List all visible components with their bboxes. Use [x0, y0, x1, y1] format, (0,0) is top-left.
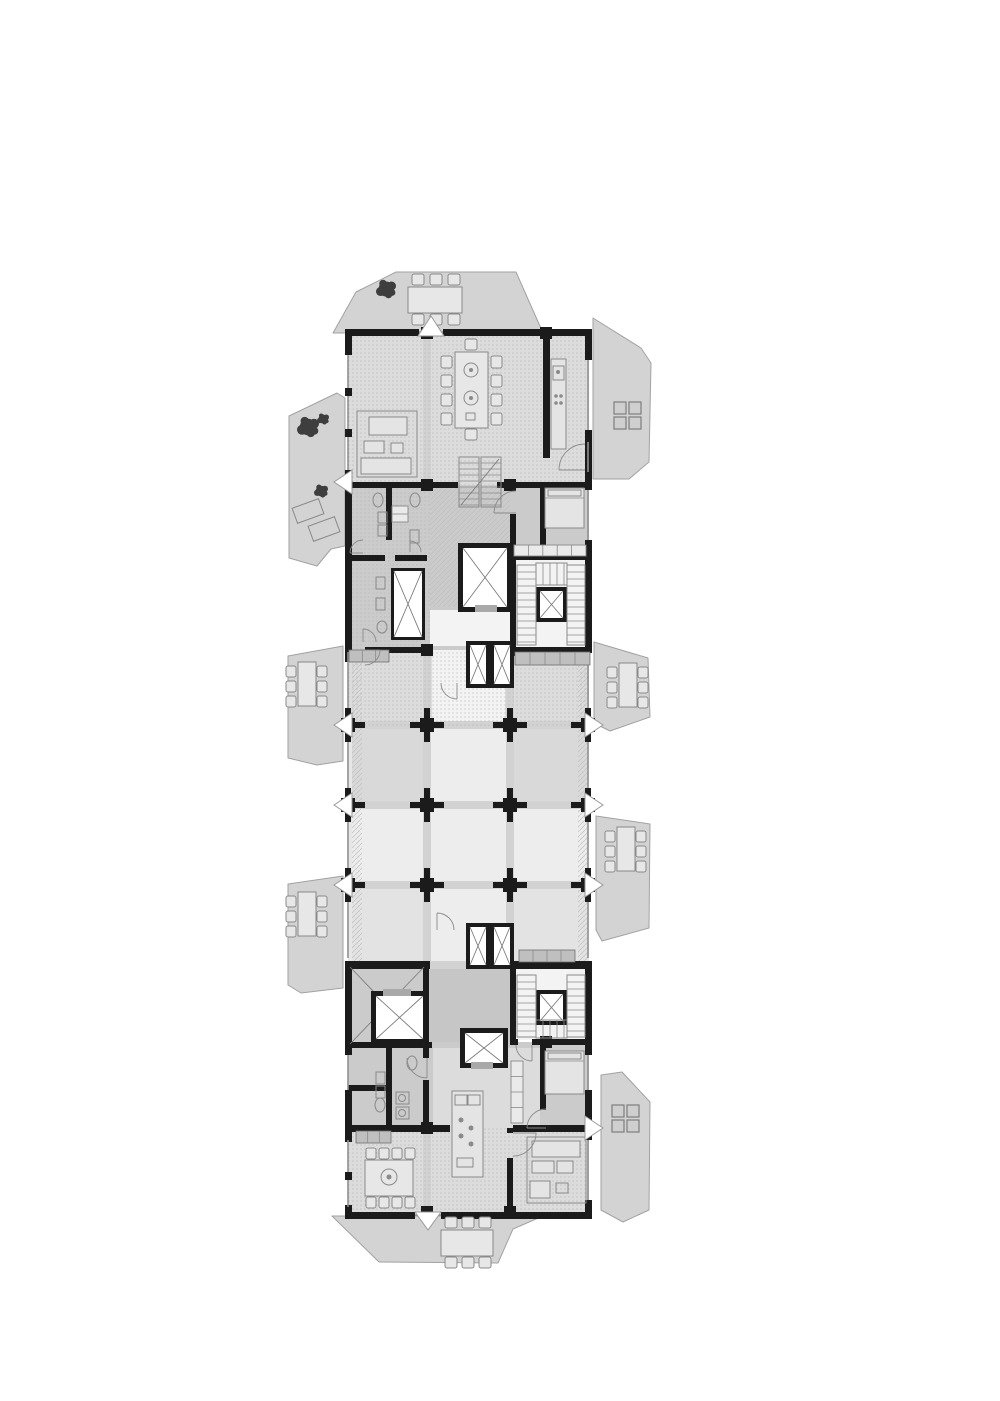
floor-plan-drawing — [0, 0, 1000, 1401]
floor-plan-page — [0, 0, 1000, 1401]
